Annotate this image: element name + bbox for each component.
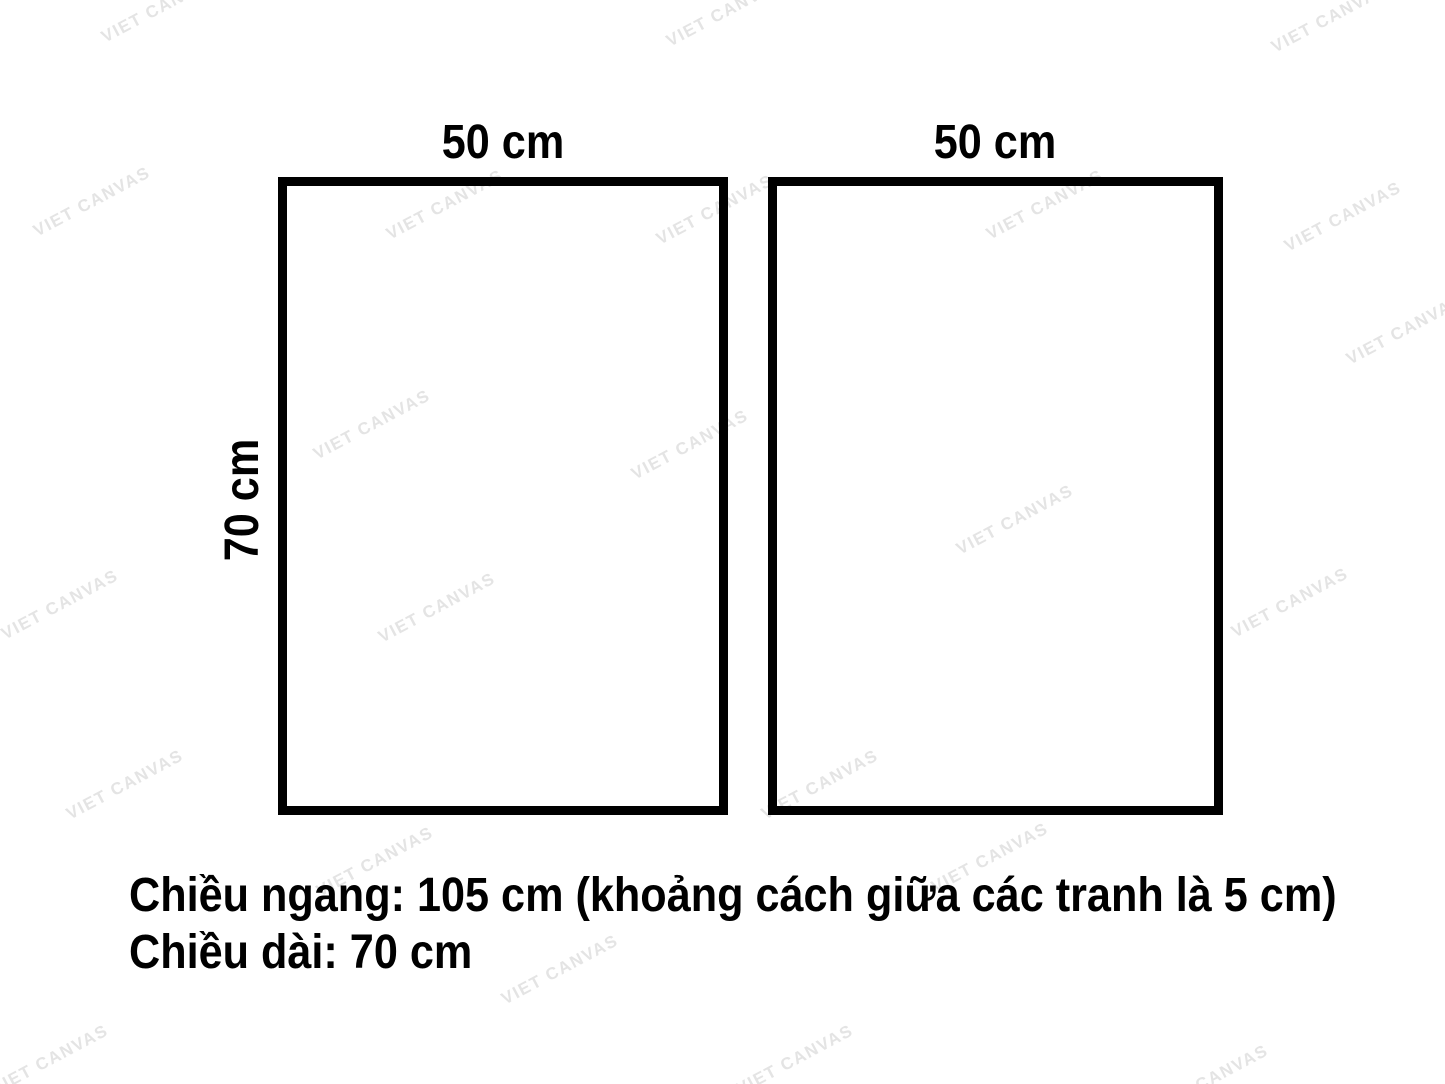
caption: Chiều ngang: 105 cm (khoảng cách giữa cá… xyxy=(129,867,1337,981)
frame-right-width-label: 50 cm xyxy=(934,119,1056,167)
frame-left-width-label: 50 cm xyxy=(442,119,564,167)
watermark-text: VIET CANVAS xyxy=(1228,564,1352,642)
frame-right xyxy=(768,177,1223,815)
watermark-text: VIET CANVAS xyxy=(63,746,187,824)
watermark-text: VIET CANVAS xyxy=(1281,178,1405,256)
caption-line-vertical: Chiều dài: 70 cm xyxy=(129,924,1337,981)
caption-line-horizontal: Chiều ngang: 105 cm (khoảng cách giữa cá… xyxy=(129,867,1337,924)
watermark-text: VIET CANVAS xyxy=(98,0,222,47)
watermark-text: VIET CANVAS xyxy=(0,1021,112,1084)
watermark-text: VIET CANVAS xyxy=(1343,291,1445,369)
watermark-text: VIET CANVAS xyxy=(663,0,787,51)
watermark-text: VIET CANVAS xyxy=(0,566,122,644)
watermark-text: VIET CANVAS xyxy=(30,163,154,241)
watermark-text: VIET CANVAS xyxy=(1268,0,1392,57)
watermark-text: VIET CANVAS xyxy=(1148,1041,1272,1084)
watermark-text: VIET CANVAS xyxy=(733,1021,857,1084)
frame-left xyxy=(278,177,728,815)
frame-height-label: 70 cm xyxy=(219,439,267,561)
size-diagram: VIET CANVASVIET CANVASVIET CANVASVIET CA… xyxy=(0,0,1445,1084)
